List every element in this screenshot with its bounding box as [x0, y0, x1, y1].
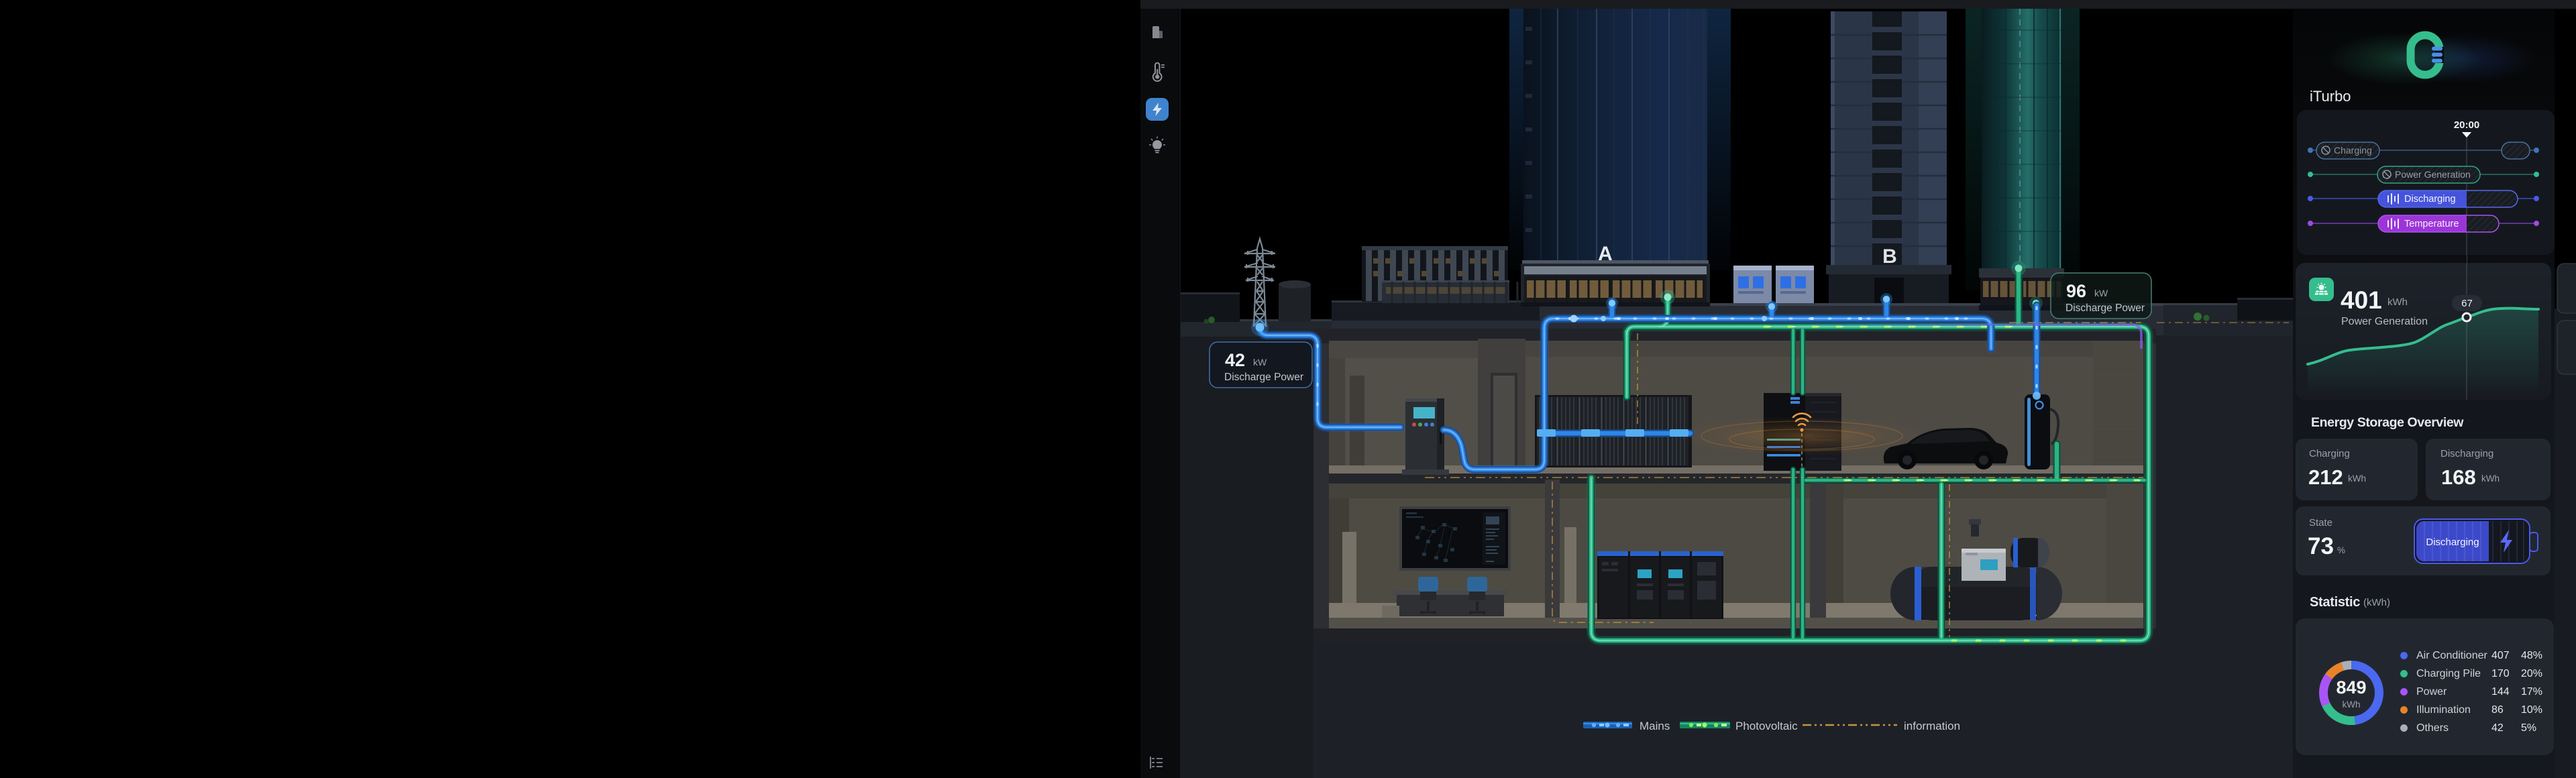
svg-text:67: 67: [2461, 298, 2473, 309]
svg-text:Discharging: Discharging: [2404, 194, 2456, 205]
svg-text:401: 401: [2341, 286, 2382, 314]
svg-text:kWh: kWh: [2387, 296, 2408, 308]
svg-text:Power Generation: Power Generation: [2395, 169, 2471, 180]
svg-text:information: information: [1904, 720, 1960, 732]
svg-text:Photovoltaic: Photovoltaic: [1735, 720, 1798, 732]
svg-text:96: 96: [2066, 281, 2086, 301]
svg-text:Discharge Power: Discharge Power: [2065, 302, 2145, 314]
svg-text:A: A: [1598, 243, 1613, 265]
svg-text:Power Generation: Power Generation: [2341, 316, 2428, 327]
svg-text:Discharging: Discharging: [2426, 537, 2479, 548]
svg-text:Mains: Mains: [1640, 720, 1670, 732]
svg-text:kW: kW: [1253, 357, 1267, 368]
svg-text:42: 42: [1225, 350, 1245, 370]
svg-text:kW: kW: [2094, 288, 2108, 298]
svg-text:Charging: Charging: [2334, 145, 2372, 156]
svg-text:B: B: [1882, 245, 1897, 268]
svg-text:20:00: 20:00: [2454, 119, 2479, 131]
svg-text:Discharge Power: Discharge Power: [1224, 372, 1303, 383]
svg-text:Temperature: Temperature: [2404, 219, 2459, 229]
